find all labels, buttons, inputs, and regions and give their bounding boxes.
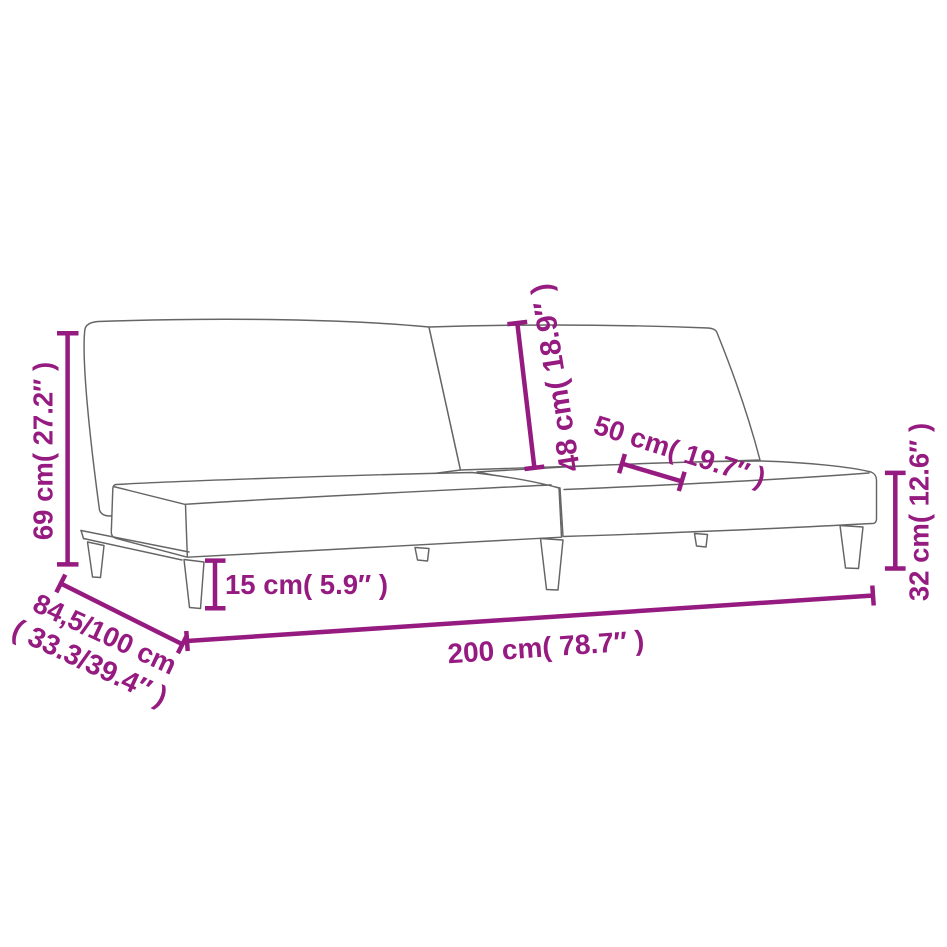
svg-text:32 cm( 12.6″ ): 32 cm( 12.6″ )	[904, 423, 935, 601]
svg-text:200 cm( 78.7″ ): 200 cm( 78.7″ )	[446, 625, 645, 670]
svg-text:69 cm( 27.2″ ): 69 cm( 27.2″ )	[28, 362, 59, 540]
svg-text:15 cm( 5.9″ ): 15 cm( 5.9″ )	[225, 569, 388, 600]
